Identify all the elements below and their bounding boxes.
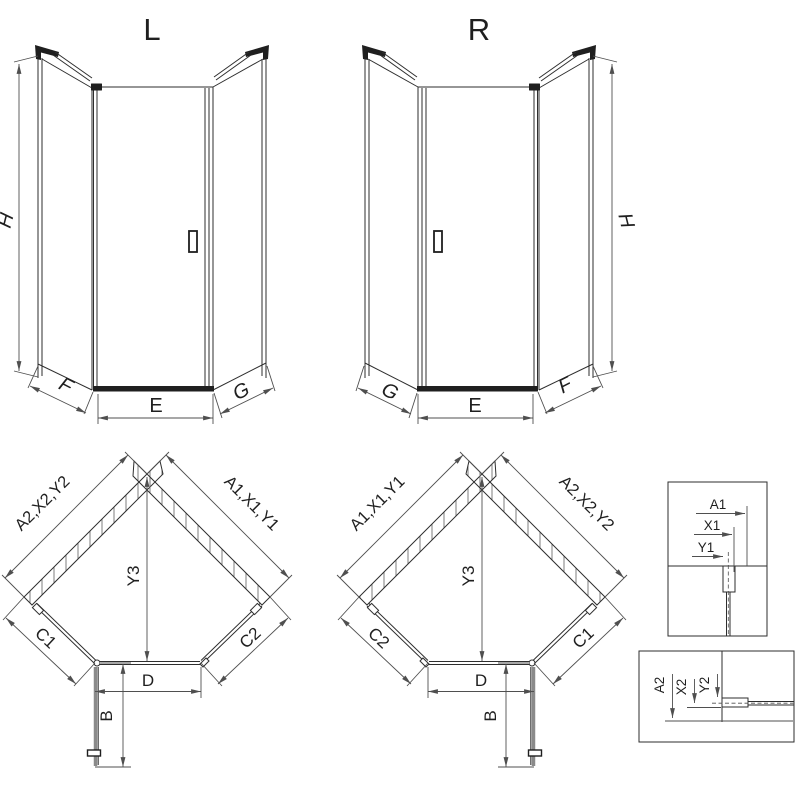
- label-left-wall: A1,X1,Y1: [346, 472, 408, 534]
- label-left-wall: A2,X2,Y2: [11, 472, 73, 534]
- elevation-right-view: R H G E F: [356, 12, 638, 424]
- plan-right-view: A1,X1,Y1 A2,X2,Y2 Y3 C2 C1 D B: [337, 452, 627, 767]
- label-C2: C2: [364, 624, 393, 653]
- label-H: H: [0, 210, 19, 230]
- detail-frame: [639, 651, 794, 742]
- label-C1: C1: [569, 624, 598, 653]
- drawing-page: L H F: [0, 0, 800, 800]
- label-right-wall: A1,X1,Y1: [221, 472, 283, 534]
- label-Y3: Y3: [124, 566, 143, 587]
- wall-hatch-right: [133, 461, 270, 605]
- label-G: G: [229, 378, 253, 405]
- elevation-left-title: L: [143, 12, 160, 47]
- label-A2: A2: [652, 677, 667, 694]
- elevation-left-structure: [35, 45, 269, 392]
- label-E: E: [149, 395, 162, 417]
- label-Y2: Y2: [697, 677, 712, 694]
- wall-profile-section: [723, 566, 735, 592]
- label-F: F: [555, 372, 577, 398]
- door-handle: [88, 750, 101, 756]
- label-B: B: [97, 710, 116, 721]
- magnet-profile: [420, 658, 429, 667]
- magnet-profile: [200, 658, 209, 667]
- diagram-canvas: L H F: [0, 0, 800, 800]
- label-B: B: [481, 710, 500, 721]
- label-Y3: Y3: [459, 566, 478, 587]
- label-X2: X2: [674, 679, 689, 696]
- label-E: E: [468, 395, 481, 417]
- plan-right-dimensions: A1,X1,Y1 A2,X2,Y2 Y3 C2 C1 D B: [337, 452, 627, 767]
- threshold: [93, 386, 214, 392]
- hinge-cap: [91, 84, 102, 91]
- label-D: D: [142, 671, 154, 690]
- support-bars: [53, 52, 251, 81]
- support-bars: [380, 52, 578, 81]
- elevation-left-dimensions: H F E G: [0, 56, 275, 424]
- label-Y1: Y1: [698, 540, 715, 555]
- elevation-right-dimensions: H G E F: [356, 56, 638, 424]
- wall-profile-right: [250, 603, 261, 614]
- label-C1: C1: [31, 624, 60, 653]
- wall-profile-section: [722, 698, 748, 707]
- label-D: D: [475, 671, 487, 690]
- label-H: H: [613, 211, 638, 231]
- plan-left-dimensions: A2,X2,Y2 A1,X1,Y1 Y3 C1 C2 D B: [2, 452, 292, 767]
- label-right-wall: A2,X2,Y2: [556, 472, 618, 534]
- label-C2: C2: [236, 624, 265, 653]
- elevation-right-structure: [362, 45, 596, 392]
- label-X1: X1: [704, 518, 721, 533]
- detail-box-a1: A1 X1 Y1: [668, 482, 767, 636]
- label-G: G: [378, 378, 402, 405]
- elevation-left-view: L H F: [0, 12, 275, 424]
- label-F: F: [55, 373, 77, 399]
- door-handle: [434, 231, 442, 252]
- hinge-cap: [529, 84, 540, 91]
- plan-left-view: A2,X2,Y2 A1,X1,Y1 Y3 C1 C2 D B: [2, 452, 292, 767]
- door-handle: [529, 750, 542, 756]
- wall-hatch-right: [466, 461, 605, 605]
- threshold: [417, 386, 538, 392]
- elevation-right-title: R: [468, 12, 490, 47]
- detail-box-a2: A2 X2 Y2: [639, 651, 794, 742]
- wall-profile-left: [367, 603, 378, 614]
- door-handle: [189, 231, 197, 252]
- label-A1: A1: [710, 497, 727, 512]
